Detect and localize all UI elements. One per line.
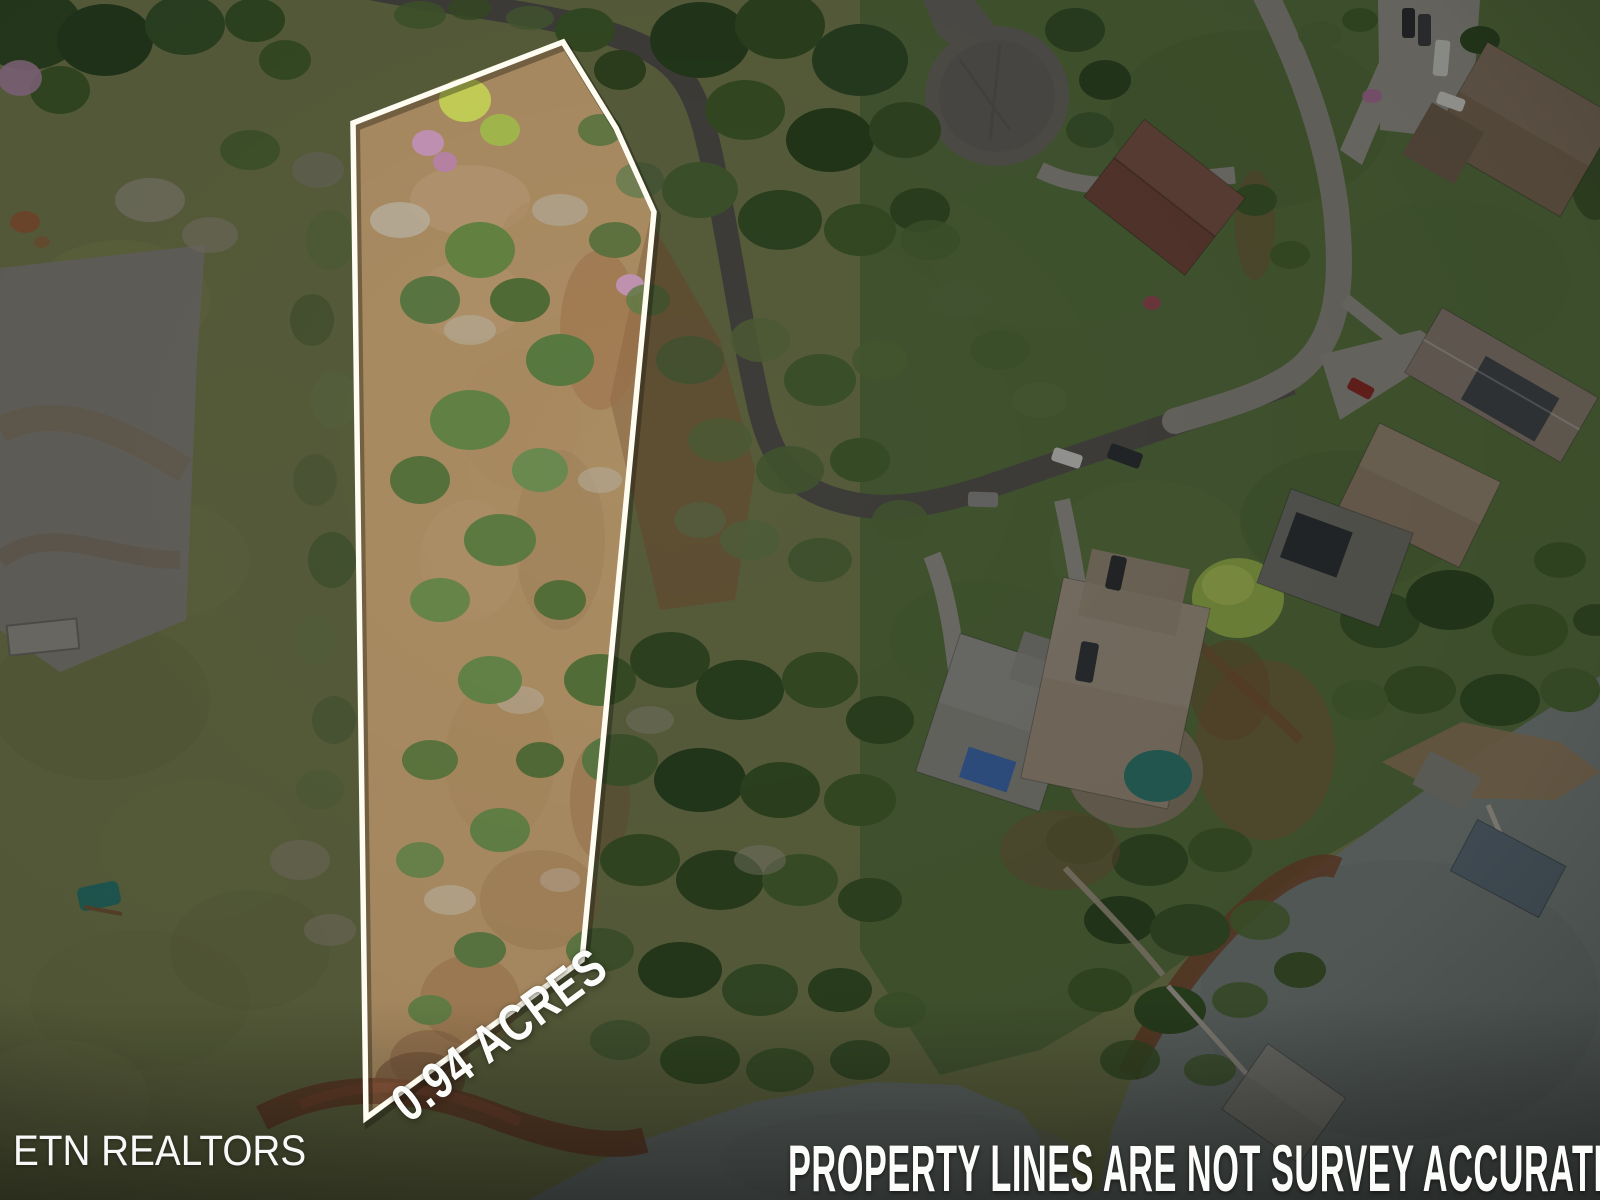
brokerage-watermark: ETN REALTORS [13, 1127, 306, 1176]
aerial-scene [0, 0, 1600, 1200]
aerial-photo: 0.94 ACRES PROPERTY LINES ARE NOT SURVEY… [0, 0, 1600, 1200]
survey-disclaimer: PROPERTY LINES ARE NOT SURVEY ACCURATE [788, 1130, 1600, 1200]
